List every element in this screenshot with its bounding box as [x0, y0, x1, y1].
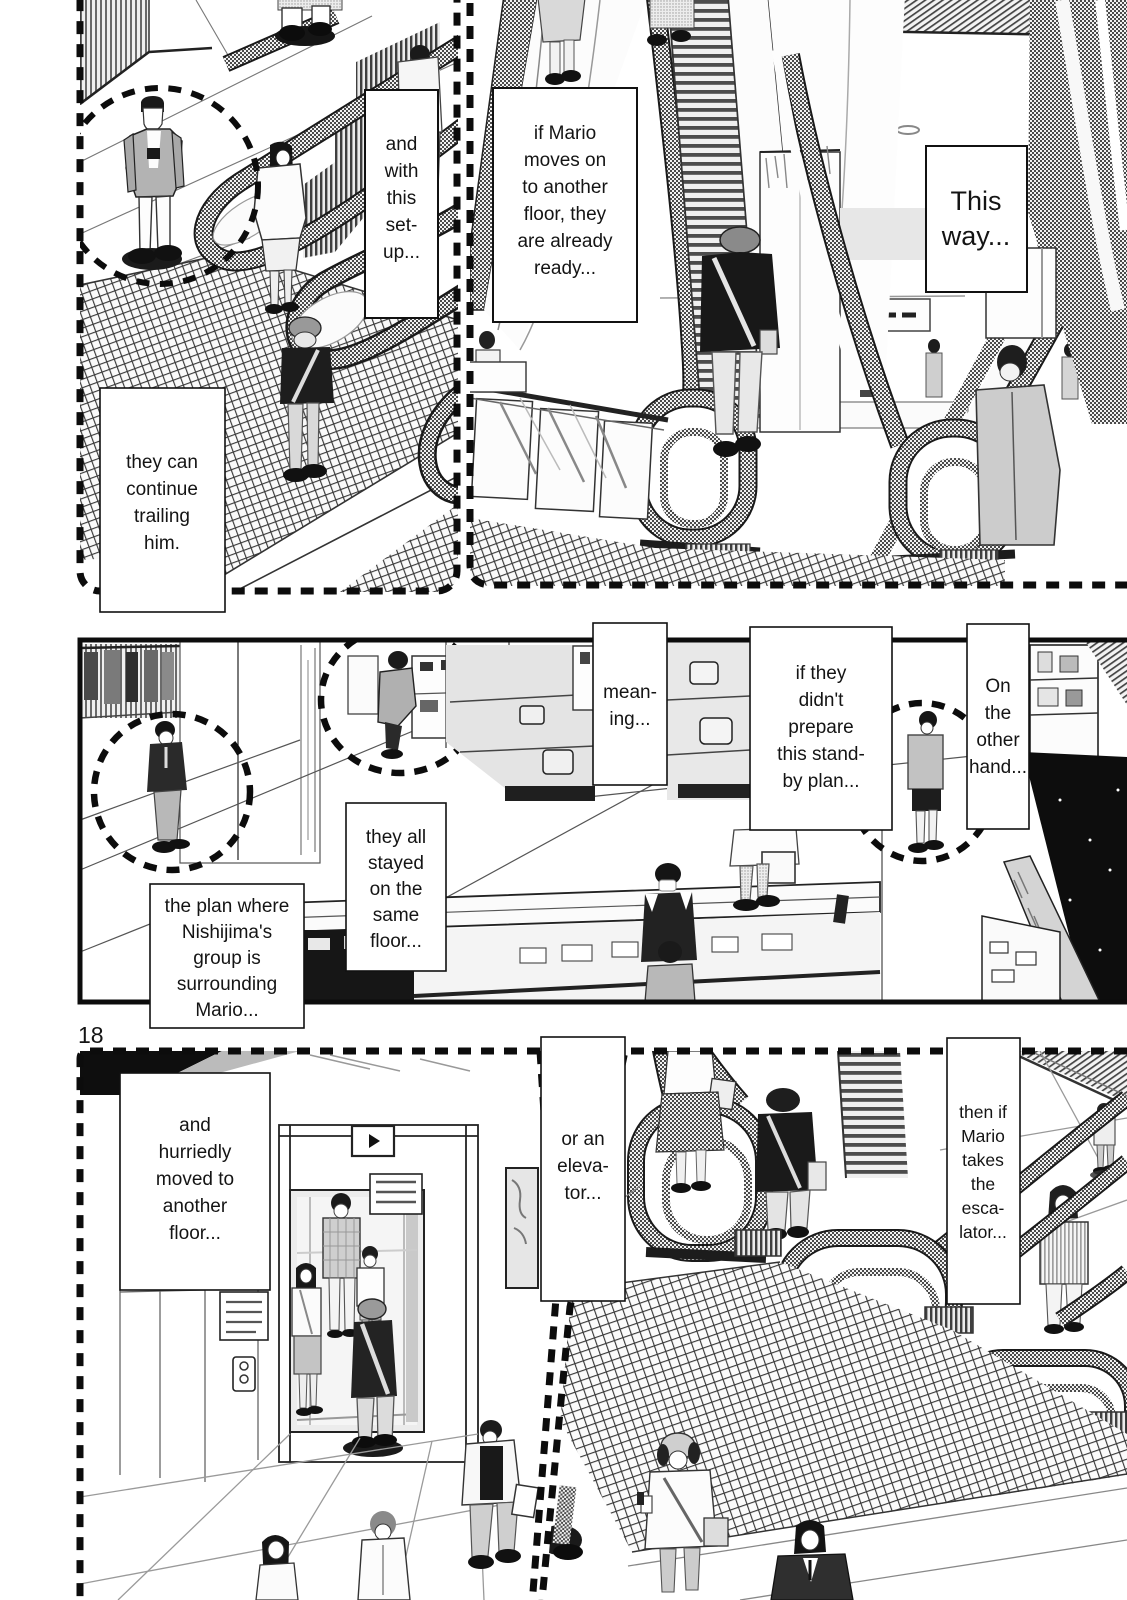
svg-text:This: This — [950, 186, 1001, 216]
svg-text:they can: they can — [126, 452, 198, 473]
svg-text:another: another — [163, 1196, 228, 1217]
svg-text:and: and — [386, 134, 418, 155]
svg-text:the: the — [985, 703, 1011, 724]
svg-text:Mario...: Mario... — [195, 1000, 258, 1021]
svg-text:ready...: ready... — [534, 258, 596, 279]
svg-text:On: On — [985, 676, 1010, 697]
svg-text:this: this — [387, 188, 417, 209]
svg-text:with: with — [384, 161, 419, 182]
svg-text:lator...: lator... — [959, 1222, 1007, 1242]
svg-text:Nishijima's: Nishijima's — [182, 922, 272, 943]
svg-text:Mario: Mario — [961, 1126, 1005, 1146]
svg-text:trailing: trailing — [134, 506, 190, 527]
svg-text:same: same — [373, 905, 419, 926]
svg-text:set-: set- — [386, 215, 418, 236]
svg-text:to another: to another — [522, 177, 608, 198]
svg-text:hurriedly: hurriedly — [159, 1142, 232, 1163]
svg-text:continue: continue — [126, 479, 198, 500]
svg-text:up...: up... — [383, 242, 420, 263]
svg-text:or an: or an — [561, 1129, 604, 1150]
svg-text:takes: takes — [962, 1150, 1004, 1170]
svg-text:hand...: hand... — [969, 757, 1027, 778]
svg-text:the: the — [971, 1174, 995, 1194]
svg-text:floor, they: floor, they — [524, 204, 607, 225]
svg-text:mean-: mean- — [603, 682, 657, 703]
svg-text:ing...: ing... — [609, 709, 650, 730]
svg-text:then if: then if — [959, 1102, 1007, 1122]
svg-text:way...: way... — [941, 221, 1011, 251]
svg-text:floor...: floor... — [169, 1223, 221, 1244]
svg-text:the plan where: the plan where — [165, 896, 290, 917]
svg-text:group is: group is — [193, 948, 261, 969]
svg-text:by plan...: by plan... — [782, 771, 859, 792]
svg-text:him.: him. — [144, 533, 180, 554]
svg-text:moved to: moved to — [156, 1169, 234, 1190]
svg-text:18: 18 — [78, 1022, 104, 1048]
svg-text:they all: they all — [366, 827, 426, 848]
svg-text:surrounding: surrounding — [177, 974, 277, 995]
svg-text:on the: on the — [370, 879, 423, 900]
svg-text:this stand-: this stand- — [777, 744, 865, 765]
svg-text:eleva-: eleva- — [557, 1156, 609, 1177]
svg-text:floor...: floor... — [370, 931, 422, 952]
svg-text:stayed: stayed — [368, 853, 424, 874]
svg-text:tor...: tor... — [565, 1183, 602, 1204]
svg-text:other: other — [976, 730, 1020, 751]
svg-text:are already: are already — [517, 231, 613, 252]
svg-text:if Mario: if Mario — [534, 123, 596, 144]
svg-text:didn't: didn't — [799, 690, 845, 711]
svg-text:if they: if they — [796, 663, 847, 684]
svg-text:moves on: moves on — [524, 150, 606, 171]
svg-text:esca-: esca- — [962, 1198, 1005, 1218]
svg-text:prepare: prepare — [788, 717, 854, 738]
svg-text:and: and — [179, 1115, 211, 1136]
